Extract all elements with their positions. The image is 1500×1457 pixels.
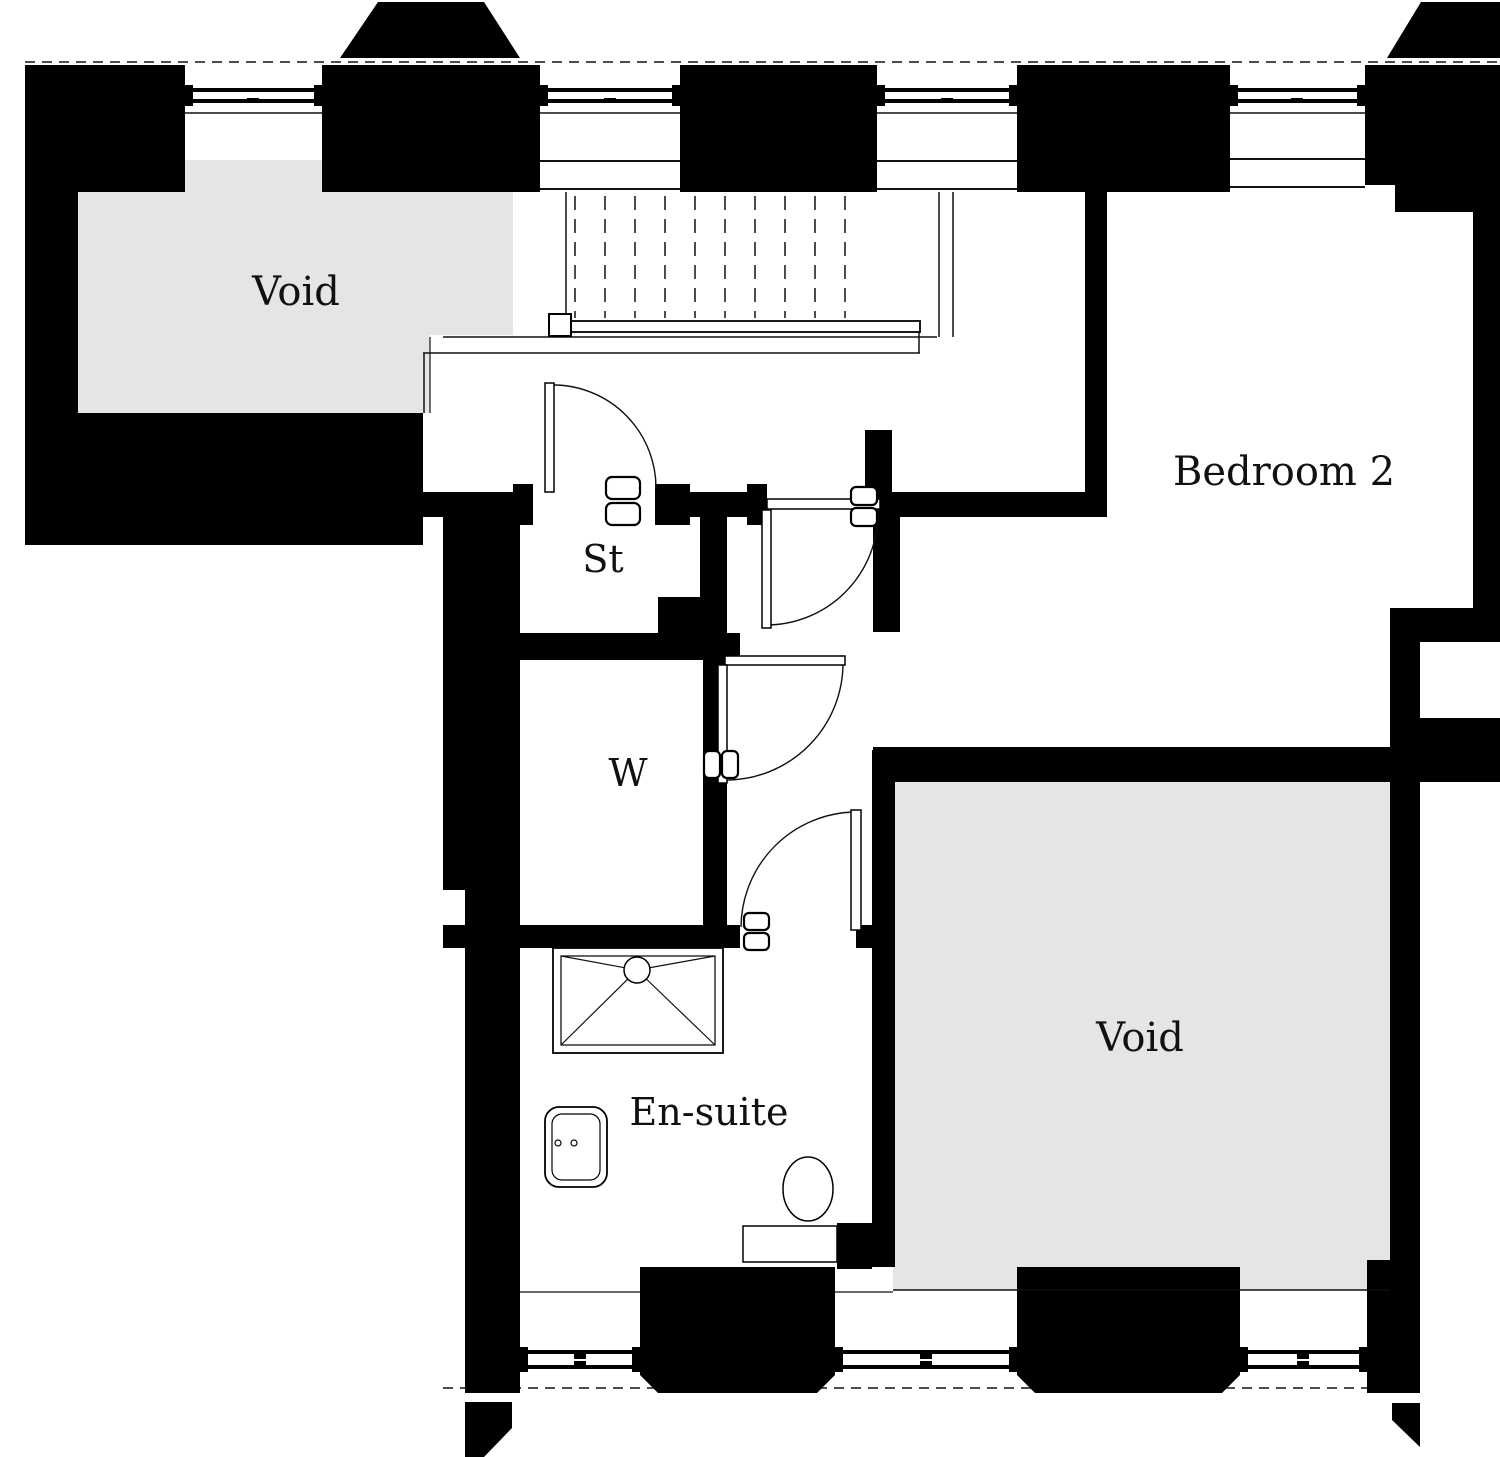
window5-jamb-r (632, 1347, 640, 1372)
window1-jamb-r (314, 85, 322, 106)
wall-st-notch (658, 597, 700, 633)
window4-tick-b (1291, 98, 1303, 102)
door-arc-corridor (766, 512, 878, 625)
window7-jamb-r (1359, 1347, 1367, 1372)
window2-jamb-r (672, 85, 680, 106)
pier-bottom-center (640, 1267, 835, 1393)
room-label-void-bottom: Void (1096, 1015, 1184, 1061)
door-arc-ensuite (741, 812, 855, 927)
chimney-right (1387, 2, 1500, 58)
window4-tick-a (1291, 88, 1303, 92)
window6-line-a (835, 1350, 1017, 1354)
door-handle-wardrobe-b (722, 751, 738, 778)
wall-left (25, 65, 78, 413)
toilet-bowl (783, 1157, 833, 1221)
wall-pier-top-2 (322, 65, 540, 192)
window4-jamb-r (1357, 85, 1365, 106)
void-top-bay-fill (185, 160, 322, 193)
shower-head (624, 957, 650, 983)
wall-stub-west (865, 430, 892, 494)
door-handle-st-a (606, 477, 640, 499)
window3-jamb-l (877, 85, 885, 106)
void-top-fill-b (78, 335, 430, 413)
wall-bedroom-west (1085, 192, 1107, 517)
window2-tick-a (604, 88, 616, 92)
room-label-ensuite: En-suite (630, 1090, 789, 1134)
door-leaf-wardrobe (725, 656, 845, 665)
door-leaf-st (545, 383, 554, 492)
wall-void2-west (872, 750, 895, 1267)
window6-jamb-l (835, 1347, 843, 1372)
sink-outer (545, 1107, 607, 1187)
room-label-bedroom2: Bedroom 2 (1173, 449, 1395, 495)
stair-rail (565, 321, 920, 332)
window7-line-a (1240, 1350, 1367, 1354)
window6-tick-a (920, 1354, 932, 1359)
window6-jamb-r (1009, 1347, 1017, 1372)
toilet-tank (743, 1226, 837, 1262)
wall-se-block (1418, 718, 1500, 782)
window3-jamb-r (1009, 85, 1017, 106)
window4-jamb-l (1230, 85, 1238, 106)
wall-closet-west (443, 492, 520, 890)
window7-jamb-l (1240, 1347, 1248, 1372)
door-handle-ensuite-a (744, 913, 769, 930)
wall-void2-north (873, 747, 1400, 782)
wall-se-finger (1390, 608, 1500, 642)
wall-pier-bottom-se (1367, 1260, 1420, 1393)
window3-tick-a (941, 88, 953, 92)
door-leaf-ensuite (851, 810, 861, 930)
door-arc-st (554, 385, 656, 490)
floor-plan-drawing (0, 0, 1500, 1457)
window5-line-a (520, 1350, 640, 1354)
window1-tick-a (247, 88, 259, 92)
wall-pier-top-4 (1017, 65, 1230, 192)
window7-tick-b (1297, 1361, 1309, 1366)
wall-pier-bottom-left (465, 948, 520, 1393)
door-handle-st-b (606, 503, 640, 525)
wall-pier-top-3 (680, 65, 877, 192)
wall-st-east (700, 492, 727, 660)
window5-jamb-l (520, 1347, 528, 1372)
stair-newel-post (549, 314, 571, 336)
room-label-void-top: Void (252, 269, 340, 315)
window6-tick-b (920, 1361, 932, 1366)
wall-hall-south-c (878, 492, 1107, 517)
door-handle-ensuite-b (744, 933, 769, 950)
wall-ensuite-east-step (837, 1223, 872, 1269)
door-leaf-corridor (762, 510, 771, 628)
floor-plan: Void Void Bedroom 2 St W En-suite (0, 0, 1500, 1457)
door-arc-wardrobe (727, 662, 843, 780)
wall-ensuite-north-a (443, 925, 740, 948)
corner-block-se (1392, 1403, 1420, 1447)
chimney-left (340, 2, 520, 58)
wall-jamb-nub-2 (655, 484, 690, 525)
window1-tick-b (247, 98, 259, 102)
room-label-storage: St (582, 537, 623, 581)
window3-tick-b (941, 98, 953, 102)
door-handle-wardrobe-a (704, 751, 720, 778)
window2-tick-b (604, 98, 616, 102)
pier-bottom-void (1017, 1267, 1240, 1393)
window2-jamb-l (540, 85, 548, 106)
window5-tick-b (574, 1361, 586, 1366)
corner-block-sw (465, 1402, 512, 1457)
wall-right-edge (1473, 185, 1500, 635)
window1-jamb-l (185, 85, 193, 106)
wall-left-block (25, 413, 423, 545)
door-handle-corridor-b (851, 508, 877, 526)
room-label-wardrobe: W (608, 751, 647, 795)
wall-se-vertical (1390, 642, 1420, 1267)
door-handle-corridor-a (851, 487, 877, 505)
wall-pier-top-5 (1365, 65, 1500, 185)
window5-tick-a (574, 1354, 586, 1359)
window7-tick-a (1297, 1354, 1309, 1359)
